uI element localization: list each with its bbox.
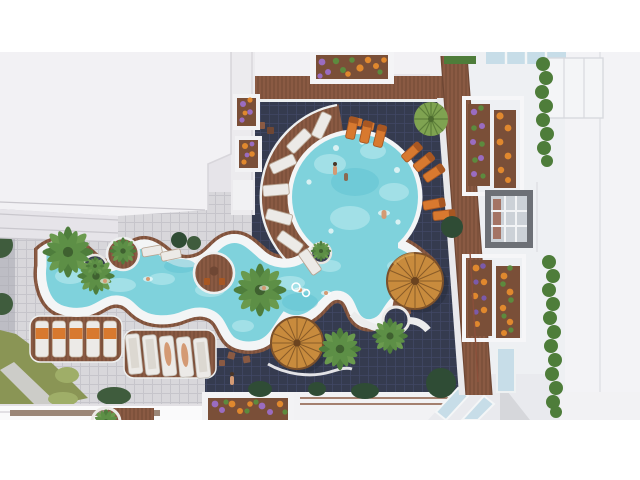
person-standing — [333, 162, 337, 175]
bush — [97, 387, 131, 405]
lounger-row-orange-towels: White sun loungers — [36, 321, 117, 357]
glass-panel — [497, 348, 515, 392]
lounge-chair — [104, 321, 117, 357]
swimmer — [321, 290, 331, 295]
bush — [351, 383, 379, 399]
palm-tree — [109, 237, 136, 264]
palm-tree — [311, 241, 331, 261]
lounge-chair — [53, 321, 66, 357]
roof-panels — [545, 58, 603, 118]
bush — [171, 232, 187, 248]
swimmer — [259, 285, 269, 290]
aerial-render: Aerial 3D architectural rendering of a r… — [0, 52, 640, 420]
render-canvas: Aerial 3D architectural rendering of a r… — [0, 52, 640, 420]
roof-surface — [0, 52, 231, 216]
flower-planter — [310, 52, 394, 84]
screenshot-frame: Aerial 3D architectural rendering of a r… — [0, 0, 640, 480]
flower-planter — [235, 136, 262, 172]
bush — [441, 216, 463, 238]
lounge-chair — [36, 321, 49, 357]
bush — [308, 382, 326, 396]
round-tree — [414, 102, 448, 136]
palm-tree — [234, 264, 287, 317]
flower-planter — [233, 94, 260, 130]
lounge-chair — [263, 183, 290, 196]
skylight-window: Skylight window — [485, 190, 533, 248]
top-roof-strip — [394, 52, 441, 74]
person-standing — [344, 173, 348, 181]
top-roof-strip — [252, 52, 314, 78]
swimmer — [100, 278, 110, 283]
bush — [426, 368, 456, 398]
deck-edge — [255, 99, 445, 102]
palm-tree — [319, 328, 362, 371]
lounger-row-white — [125, 333, 211, 378]
grass-circle — [48, 392, 78, 406]
bush — [187, 236, 201, 250]
palm-tree — [372, 318, 408, 354]
flower-planter: Flower planters — [202, 392, 294, 420]
bush — [248, 381, 272, 397]
lounge-chair — [87, 321, 100, 357]
swimmer — [143, 276, 153, 281]
balcony — [233, 180, 253, 210]
lounge-chair — [70, 321, 83, 357]
person-standing — [230, 372, 234, 385]
palm-tree — [86, 257, 105, 276]
hedge-top — [444, 56, 476, 64]
grass-circle — [55, 367, 79, 383]
